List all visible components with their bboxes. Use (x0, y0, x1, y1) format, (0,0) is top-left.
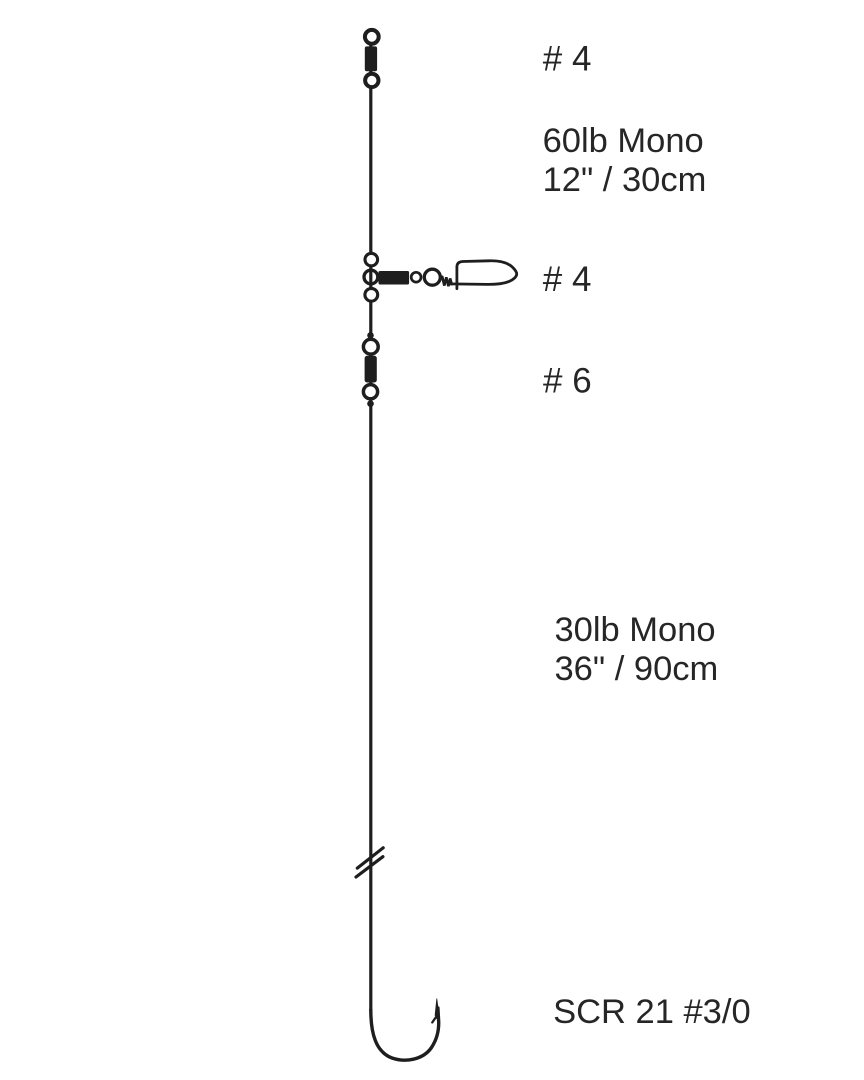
svg-text:SCR 21 #3/0: SCR 21 #3/0 (553, 993, 751, 1031)
svg-text:30lb Mono: 30lb Mono (555, 611, 716, 649)
svg-text:# 4: # 4 (543, 260, 592, 299)
svg-text:60lb Mono: 60lb Mono (543, 122, 704, 160)
svg-text:# 6: # 6 (543, 362, 592, 401)
svg-text:36" / 90cm: 36" / 90cm (555, 650, 719, 688)
svg-text:12" / 30cm: 12" / 30cm (543, 161, 707, 199)
svg-text:# 4: # 4 (543, 40, 592, 79)
